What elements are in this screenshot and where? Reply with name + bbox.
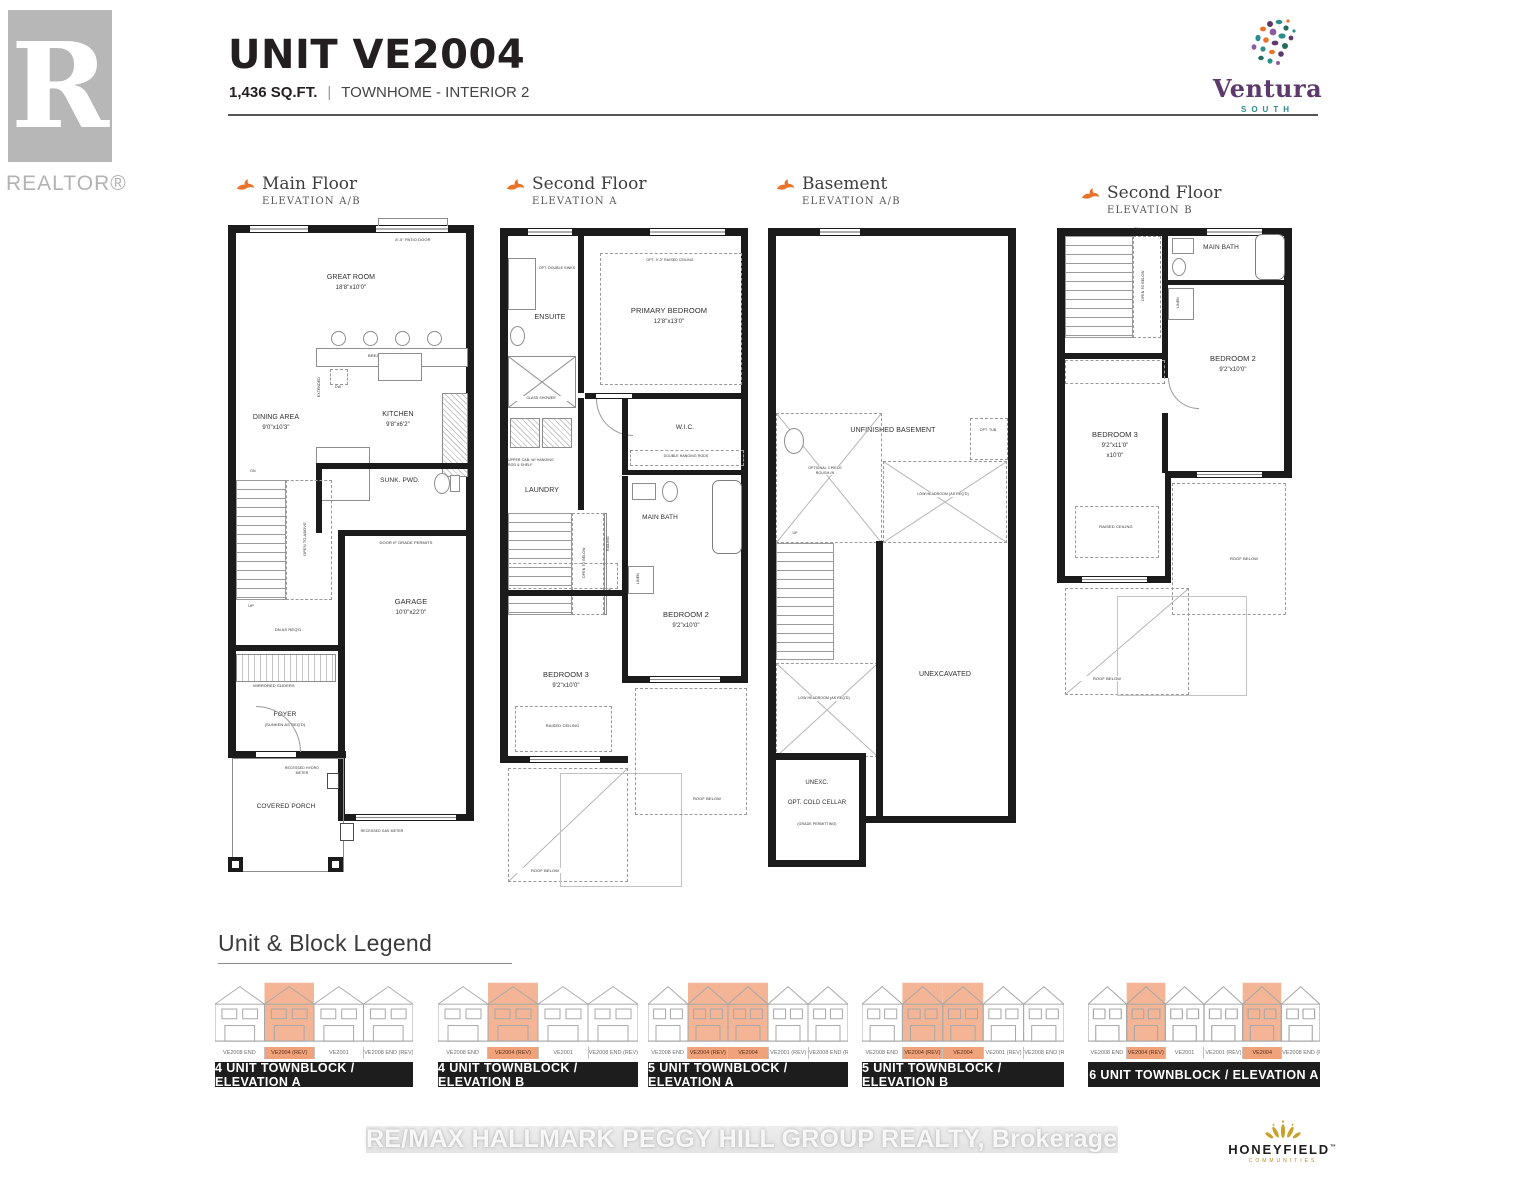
stairs-down: [1065, 236, 1133, 338]
room-dims-bedroom2: 9'2"x10'0": [1185, 367, 1281, 375]
townblock-5b: VE2008 ENDVE2004 (REV)VE2004VE2001 (REV)…: [862, 975, 1064, 1087]
townblock-sketch: [438, 975, 638, 1045]
bird-icon: [506, 178, 525, 193]
bathtub: [1255, 234, 1285, 280]
note-low-headroom: LOW HEADROOM (AS REQ'D): [792, 696, 856, 701]
porch-post: [328, 857, 343, 872]
cold-cellar-zone: [776, 760, 859, 860]
realtor-r-glyph: R: [11, 27, 109, 145]
note-railing: RAILING: [606, 524, 614, 564]
plan-elevation: ELEVATION A/B: [262, 196, 361, 207]
wall: [768, 228, 1016, 236]
room-dims-primary-bedroom: 12'8"x13'0": [595, 319, 743, 327]
honeyfield-logo: HONEYFIELD™ COMMUNITIES: [1228, 1118, 1338, 1164]
note-recessed-hydro: RECESSED HYDRO METER: [280, 766, 324, 775]
note-unexc: UNEXC.: [790, 780, 844, 788]
window: [528, 229, 572, 235]
legend-unit-label: VE2001: [1165, 1047, 1204, 1059]
note-open-to-below: OPEN TO BELOW: [1141, 246, 1150, 326]
note-low-headroom: LOW HEADROOM (AS REQ'D): [910, 492, 976, 497]
townblock-sketch: [215, 975, 413, 1045]
legend-unit-label: VE2004: [942, 1047, 983, 1059]
honeyfield-crown-icon: [1264, 1118, 1302, 1140]
legend-unit-label: VE2008 END (REV): [1023, 1047, 1064, 1059]
note-double-hanging-rods: DOUBLE HANGING RODS: [636, 454, 736, 459]
note-glass-shower: GLASS SHOWER: [512, 396, 570, 401]
stool: [363, 331, 378, 346]
bird-icon: [1081, 187, 1100, 202]
type-label: TOWNHOME - INTERIOR 2: [341, 84, 529, 101]
legend-unit-label: VE2008 END: [648, 1047, 687, 1059]
wall: [1057, 228, 1065, 583]
ventura-wordmark: Ventura: [1205, 74, 1330, 103]
room-label-bedroom3: BEDROOM 3: [1067, 430, 1163, 440]
townblock-label: 6 UNIT TOWNBLOCK / ELEVATION A: [1089, 1068, 1319, 1082]
legend-unit-label: VE2008 END (REV): [588, 1047, 638, 1059]
bird-icon: [236, 178, 255, 193]
legend-unit-label: VE2001: [314, 1047, 364, 1059]
wall: [622, 399, 628, 475]
legend-unit-row: VE2008 ENDVE2004 (REV)VE2001VE2008 END (…: [438, 1047, 638, 1059]
window: [650, 677, 720, 682]
townblock-bar: 4 UNIT TOWNBLOCK / ELEVATION B: [438, 1062, 638, 1087]
plan-elevation: ELEVATION A/B: [802, 196, 901, 207]
townblock-label: 4 UNIT TOWNBLOCK / ELEVATION B: [438, 1061, 638, 1089]
townblock-label: 4 UNIT TOWNBLOCK / ELEVATION A: [215, 1061, 413, 1089]
note-opt-raised-ceiling: OPT. 9'-0" RAISED CEILING: [605, 258, 735, 263]
legend-unit-label: VE2001: [538, 1047, 588, 1059]
note-recessed-gas: RECESSED GAS METER: [356, 829, 408, 834]
garage-door: [356, 815, 456, 820]
note-dw: DW: [330, 385, 346, 390]
floor-plan-sheet: R REALTOR® UNIT VE2004 1,436 SQ.FT.|TOWN…: [0, 0, 1534, 1200]
room-dims-bedroom2: 9'2"x10'0": [638, 623, 734, 631]
entry-door-opening: [256, 752, 296, 757]
note-grade-permitting: (GRADE PERMITTING): [784, 822, 850, 827]
window: [650, 229, 725, 235]
note-roof-below: ROOF BELOW: [1209, 556, 1279, 561]
wall: [578, 398, 584, 510]
raised-ceiling-zone: [515, 706, 612, 752]
page-title: UNIT VE2004: [228, 32, 525, 78]
note-opt-cold-cellar: OPT. COLD CELLAR: [786, 800, 848, 808]
legend-unit-label: VE2004 (REV): [1126, 1047, 1165, 1059]
legend-unit-label: VE2008 END (REV): [808, 1047, 848, 1059]
note-linen: LINEN: [1176, 291, 1184, 315]
townblock-bar: 4 UNIT TOWNBLOCK / ELEVATION A: [215, 1062, 413, 1087]
townblock-sketch: [648, 975, 848, 1045]
raised-ceiling-zone: [1075, 506, 1159, 558]
plan-title: Main Floor: [262, 174, 361, 194]
note-open-to-above: OPEN TO ABOVE: [302, 493, 312, 585]
window: [1197, 472, 1262, 477]
legend-title: Unit & Block Legend: [218, 930, 432, 957]
note-dn: DN: [238, 469, 268, 474]
room-label-laundry: LAUNDRY: [512, 486, 572, 495]
door-opening: [596, 394, 632, 398]
second-floor-a-plan: OPT. DOUBLE SINKS ENSUITE GLASS SHOWER O…: [500, 228, 748, 888]
wall: [500, 590, 628, 596]
room-label-great-room: GREAT ROOM: [288, 273, 414, 282]
door-swing: [1168, 378, 1199, 409]
wall: [236, 645, 338, 651]
townblock-bar: 5 UNIT TOWNBLOCK / ELEVATION B: [862, 1062, 1064, 1087]
note-up: UP: [236, 603, 266, 608]
stool: [427, 331, 442, 346]
stool: [395, 331, 410, 346]
room-dims-great-room: 18'8"x10'0": [288, 285, 414, 293]
patio-door: [376, 226, 448, 232]
low-headroom-zone: [883, 461, 1007, 543]
stairs-up: [776, 543, 834, 660]
legend-unit-row: VE2008 ENDVE2004 (REV)VE2004VE2001 (REV)…: [648, 1047, 848, 1059]
wall: [500, 228, 508, 763]
room-label-bedroom2: BEDROOM 2: [638, 610, 734, 620]
townblock-label: 5 UNIT TOWNBLOCK / ELEVATION A: [648, 1061, 848, 1089]
legend-unit-label: VE2001 (REV): [1203, 1047, 1242, 1059]
dryer: [542, 418, 572, 448]
note-upper-cab: UPPER CAB. W/ HANGING ROD & SHELF: [508, 458, 560, 467]
stairs-up: [236, 480, 286, 600]
bathtub: [712, 480, 742, 554]
note-extended: EXTENDED: [317, 367, 325, 407]
note-raised-ceiling: RAISED CEILING: [520, 723, 605, 728]
legend-unit-label: VE2001 (REV): [768, 1047, 808, 1059]
wall: [859, 753, 866, 867]
honeyfield-name: HONEYFIELD: [1228, 1142, 1330, 1157]
note-opt-double-sinks: OPT. DOUBLE SINKS: [538, 266, 576, 271]
separator: |: [327, 84, 331, 101]
brokerage-watermark: RE/MAX HALLMARK PEGGY HILL GROUP REALTY,…: [366, 1126, 1118, 1153]
header-divider: [228, 114, 1318, 116]
window: [1207, 229, 1262, 235]
bath-sink: [632, 483, 656, 500]
wall: [768, 228, 776, 867]
room-label-kitchen: KITCHEN: [358, 410, 438, 419]
wall: [768, 860, 866, 867]
room-label-wic: W.I.C.: [650, 424, 720, 432]
note-dn: DN: [1127, 227, 1147, 232]
legend-unit-row: VE2008 ENDVE2004 (REV)VE2004VE2001 (REV)…: [862, 1047, 1064, 1059]
window: [250, 226, 308, 232]
legend-unit-label: VE2008 END: [438, 1047, 487, 1059]
plan-header-second-floor-b: Second Floor ELEVATION B: [1107, 183, 1222, 216]
note-optional-rough-in: OPTIONAL 3 PIECE ROUGH-IN: [802, 466, 848, 475]
main-floor-plan: 8'-0" PATIO DOOR GREAT ROOM 18'8"x10'0" …: [228, 225, 474, 875]
room-dims-garage: 10'0"x22'0": [366, 610, 456, 618]
honeyfield-sub-wordmark: COMMUNITIES: [1228, 1158, 1338, 1164]
window: [1082, 577, 1147, 582]
townblock-label: 5 UNIT TOWNBLOCK / ELEVATION B: [862, 1061, 1064, 1089]
legend-unit-label: VE2004 (REV): [487, 1047, 537, 1059]
basement-plan: UNFINISHED BASEMENT OPT. TUB OPTIONAL 3 …: [768, 228, 1016, 873]
townblock-sketch: [862, 975, 1064, 1045]
townblock-6a: VE2008 ENDVE2004 (REV)VE2001VE2001 (REV)…: [1088, 975, 1320, 1087]
room-label-dining: DINING AREA: [238, 413, 314, 422]
toilet-tank: [450, 475, 460, 492]
room-dims-dining: 9'0"x10'3": [238, 425, 314, 433]
hydro-meter: [327, 773, 339, 789]
unexcavated-zone: [883, 548, 1008, 816]
plan-header-basement: Basement ELEVATION A/B: [802, 174, 901, 207]
townblock-4b: VE2008 ENDVE2004 (REV)VE2001VE2008 END (…: [438, 975, 638, 1087]
note-door-if-grade: DOOR IF GRADE PERMITS: [366, 540, 446, 545]
room-label-sunk-pwd: SUNK. PWD.: [378, 477, 422, 485]
wall: [622, 470, 748, 475]
realtor-logo: R: [8, 10, 112, 162]
room-label-main-bath: MAIN BATH: [1193, 244, 1249, 252]
legend-unit-row: VE2008 ENDVE2004 (REV)VE2001VE2001 (REV)…: [1088, 1047, 1320, 1059]
plan-title: Second Floor: [532, 174, 647, 194]
wall: [466, 225, 474, 821]
room-label-bedroom2: BEDROOM 2: [1185, 354, 1281, 364]
room-label-covered-porch: COVERED PORCH: [248, 803, 324, 811]
wall: [1165, 473, 1171, 583]
low-headroom-zone: [776, 663, 878, 757]
plan-header-main-floor: Main Floor ELEVATION A/B: [262, 174, 361, 207]
room-dims-bedroom3: 9'2"x10'0": [518, 683, 614, 691]
ventura-south-logo: Ventura SOUTH: [1205, 16, 1330, 114]
rough-in-toilet: [784, 428, 804, 454]
wall: [1008, 228, 1016, 823]
legend-unit-label: VE2004: [727, 1047, 767, 1059]
wall: [622, 553, 628, 683]
room-label-bedroom3: BEDROOM 3: [518, 670, 614, 680]
second-floor-b-plan: OPEN TO BELOW DN MAIN BATH LINEN BEDROOM…: [1057, 228, 1292, 698]
wall: [768, 753, 866, 760]
townblock-bar: 6 UNIT TOWNBLOCK / ELEVATION A: [1088, 1062, 1320, 1087]
room-label-main-bath: MAIN BATH: [632, 514, 688, 522]
legend-unit-label: VE2004 (REV): [264, 1047, 314, 1059]
porch-post: [228, 857, 243, 872]
bedroom3-closet: [508, 563, 618, 589]
washer: [510, 418, 540, 448]
kitchen-sink-counter: [378, 353, 422, 381]
window: [530, 757, 600, 762]
note-linen: LINEN: [636, 568, 644, 590]
bath-sink: [1172, 238, 1194, 254]
toilet: [1172, 258, 1186, 276]
wall: [863, 816, 1016, 823]
note-roof-below: ROOF BELOW: [672, 796, 742, 801]
dishwasher: [330, 369, 348, 385]
plan-elevation: ELEVATION A: [532, 196, 647, 207]
legend-unit-label: VE2008 END: [1088, 1047, 1126, 1059]
sqft-label: 1,436 SQ.FT.: [229, 84, 317, 101]
bedroom3-closet: [1065, 360, 1165, 384]
plan-title: Basement: [802, 174, 901, 194]
legend-unit-label: VE2004: [1242, 1047, 1281, 1059]
wall: [316, 463, 474, 469]
wall: [578, 228, 584, 393]
legend-unit-label: VE2008 END (REV): [1281, 1047, 1320, 1059]
opt-tub-zone: [970, 418, 1008, 460]
legend-unit-label: VE2004 (REV): [687, 1047, 727, 1059]
ventura-sub-wordmark: SOUTH: [1205, 105, 1330, 114]
vanity: [508, 258, 536, 310]
room-dims2-bedroom3: x10'0": [1067, 453, 1163, 461]
foyer-closet: [236, 654, 336, 682]
room-label-primary-bedroom: PRIMARY BEDROOM: [595, 306, 743, 316]
room-dims-kitchen: 9'8"x6'2": [358, 422, 438, 430]
wall: [228, 225, 236, 758]
room-label-ensuite: ENSUITE: [524, 313, 576, 322]
legend-unit-label: VE2008 END: [215, 1047, 264, 1059]
room-label-unexcavated: UNEXCAVATED: [896, 670, 994, 679]
note-patio-door: 8'-0" PATIO DOOR: [368, 237, 458, 242]
window: [820, 229, 860, 235]
note-mirrored-sliders: MIRRORED SLIDERS: [238, 683, 310, 688]
legend-unit-label: VE2008 END: [862, 1047, 902, 1059]
plan-title: Second Floor: [1107, 183, 1222, 203]
toilet: [434, 473, 450, 494]
legend-unit-label: VE2008 END (REV): [363, 1047, 413, 1059]
note-roof-below: ROOF BELOW: [1077, 676, 1137, 681]
note-roof-below: ROOF BELOW: [516, 868, 574, 873]
wall: [1165, 280, 1292, 285]
townblock-5a: VE2008 ENDVE2004 (REV)VE2004VE2001 (REV)…: [648, 975, 848, 1087]
toilet: [662, 481, 678, 502]
legend-unit-label: VE2004 (REV): [902, 1047, 943, 1059]
townblock-bar: 5 UNIT TOWNBLOCK / ELEVATION A: [648, 1062, 848, 1087]
wall: [876, 541, 883, 816]
gas-meter: [340, 823, 354, 841]
bird-icon: [776, 178, 795, 193]
wall: [338, 530, 474, 536]
legend-underline: [218, 963, 512, 964]
honeyfield-tm: ™: [1330, 1145, 1338, 1151]
stool: [331, 331, 346, 346]
note-raised-ceiling: RAISED CEILING: [1081, 524, 1151, 529]
plan-header-second-floor-a: Second Floor ELEVATION A: [532, 174, 647, 207]
note-dn-as-reqd: DN AS REQ'D: [262, 627, 314, 632]
plan-elevation: ELEVATION B: [1107, 205, 1222, 216]
toilet: [510, 326, 525, 346]
legend-unit-label: VE2001 (REV): [983, 1047, 1024, 1059]
room-dims-bedroom3: 9'2"x11'0": [1067, 443, 1163, 451]
townblock-sketch: [1088, 975, 1320, 1045]
unit-subtitle: 1,436 SQ.FT.|TOWNHOME - INTERIOR 2: [229, 84, 529, 101]
room-label-garage: GARAGE: [366, 597, 456, 607]
wall: [1057, 353, 1168, 359]
honeyfield-wordmark: HONEYFIELD™: [1228, 1142, 1338, 1157]
legend-unit-row: VE2008 ENDVE2004 (REV)VE2001VE2008 END (…: [215, 1047, 413, 1059]
ventura-mosaic-icon: [1236, 16, 1300, 74]
note-up: UP: [780, 531, 810, 536]
townblock-4a: VE2008 ENDVE2004 (REV)VE2001VE2008 END (…: [215, 975, 413, 1087]
wall: [1284, 228, 1292, 478]
note-opt-tub: OPT. TUB: [974, 428, 1002, 433]
realtor-wordmark: REALTOR®: [6, 172, 136, 196]
